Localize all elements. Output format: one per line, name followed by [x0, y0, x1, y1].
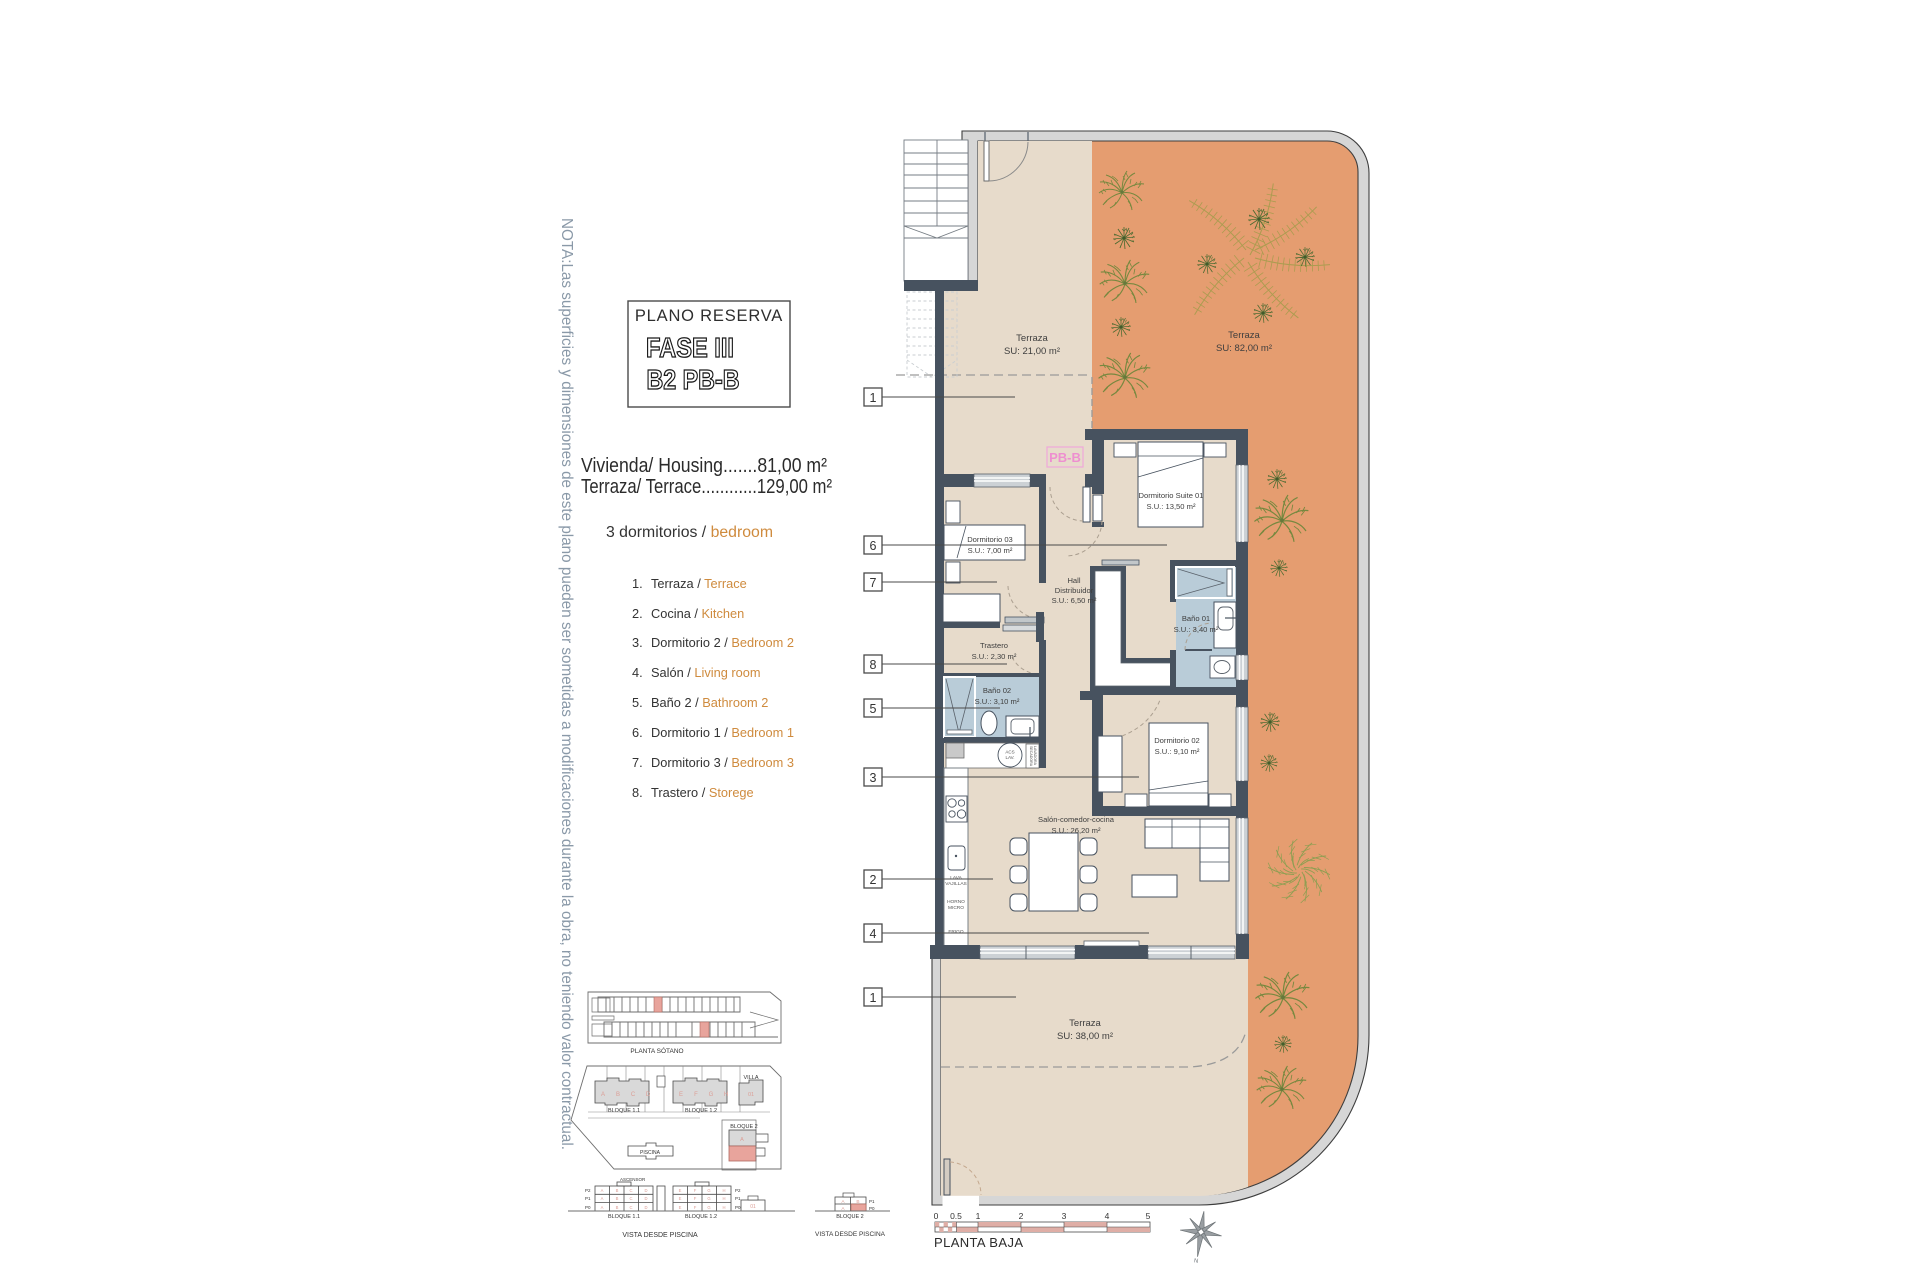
svg-text:H: H [722, 1196, 725, 1201]
svg-text:3: 3 [870, 771, 877, 785]
svg-text:5.: 5. [632, 695, 643, 710]
svg-text:PLANO RESERVA: PLANO RESERVA [635, 307, 783, 325]
svg-text:VAJILLAS: VAJILLAS [945, 881, 967, 887]
svg-text:SECADORA: SECADORA [1029, 746, 1033, 767]
svg-text:FRIGO: FRIGO [948, 929, 963, 935]
svg-text:ACS: ACS [1005, 750, 1014, 755]
svg-text:SU: 38,00 m²: SU: 38,00 m² [1057, 1031, 1113, 1042]
svg-text:MICRO: MICRO [948, 905, 964, 911]
svg-text:C: C [629, 1196, 632, 1201]
svg-text:S.U.: 3,40 m²: S.U.: 3,40 m² [1174, 625, 1219, 634]
svg-text:LAVA: LAVA [950, 875, 962, 881]
svg-text:ASCENSOR: ASCENSOR [620, 1177, 646, 1182]
svg-text:P1: P1 [869, 1199, 875, 1204]
svg-text:BLOQUE 1.2: BLOQUE 1.2 [685, 1108, 717, 1114]
svg-text:Cocina / Kitchen: Cocina / Kitchen [651, 606, 744, 621]
svg-text:H: H [722, 1205, 725, 1210]
svg-text:E: E [679, 1092, 683, 1098]
svg-text:PB-B: PB-B [1049, 450, 1081, 465]
svg-text:C: C [629, 1188, 632, 1193]
svg-text:7: 7 [870, 576, 877, 590]
svg-text:B: B [616, 1188, 619, 1193]
svg-text:Baño 02: Baño 02 [983, 686, 1011, 695]
svg-text:FASE III: FASE III [646, 332, 734, 363]
svg-text:01: 01 [750, 1204, 756, 1210]
svg-text:C: C [631, 1092, 636, 1098]
svg-text:Trastero: Trastero [980, 641, 1008, 650]
svg-text:8: 8 [870, 658, 877, 672]
svg-text:E: E [679, 1205, 682, 1210]
svg-text:SU: 21,00 m²: SU: 21,00 m² [1004, 346, 1060, 357]
svg-text:1.: 1. [632, 576, 643, 591]
svg-text:2.: 2. [632, 606, 643, 621]
svg-text:G: G [707, 1205, 710, 1210]
svg-text:H: H [724, 1092, 728, 1098]
svg-text:3.: 3. [632, 635, 643, 650]
svg-text:P0: P0 [585, 1205, 591, 1210]
svg-text:4: 4 [1105, 1211, 1110, 1221]
svg-text:F: F [694, 1205, 697, 1210]
svg-text:HORNO: HORNO [947, 899, 965, 905]
svg-text:Salón / Living room: Salón / Living room [651, 665, 761, 680]
svg-text:3 dormitorios / bedroom: 3 dormitorios / bedroom [606, 524, 773, 541]
svg-text:B: B [616, 1196, 619, 1201]
svg-text:H: H [722, 1188, 725, 1193]
svg-text:Distribuidor: Distribuidor [1055, 586, 1094, 595]
svg-text:Vivienda/ Housing.......81,00: Vivienda/ Housing.......81,00 m² [581, 455, 827, 477]
svg-text:6.: 6. [632, 725, 643, 740]
svg-text:S.U.: 3,10 m²: S.U.: 3,10 m² [975, 697, 1020, 706]
svg-text:Dormitorio 1 / Bedroom 1: Dormitorio 1 / Bedroom 1 [651, 725, 794, 740]
svg-text:P0: P0 [869, 1206, 875, 1211]
svg-text:1: 1 [870, 391, 877, 405]
svg-text:P2: P2 [585, 1188, 591, 1193]
svg-text:G: G [707, 1188, 710, 1193]
svg-text:7.: 7. [632, 755, 643, 770]
svg-text:VILLA: VILLA [744, 1075, 759, 1081]
svg-text:4: 4 [870, 927, 877, 941]
svg-text:D: D [644, 1205, 647, 1210]
svg-text:Dormitorio 3 / Bedroom 3: Dormitorio 3 / Bedroom 3 [651, 755, 794, 770]
svg-text:D: D [646, 1092, 651, 1098]
svg-text:E: E [679, 1196, 682, 1201]
svg-text:F: F [694, 1188, 697, 1193]
svg-text:Terraza: Terraza [1228, 330, 1260, 341]
svg-text:1: 1 [870, 991, 877, 1005]
svg-text:D: D [644, 1196, 647, 1201]
svg-text:A: A [601, 1196, 604, 1201]
svg-text:P2: P2 [735, 1188, 741, 1193]
svg-text:C: C [629, 1205, 632, 1210]
svg-text:BLOQUE 2: BLOQUE 2 [836, 1214, 864, 1220]
svg-text:P1: P1 [585, 1196, 591, 1201]
svg-text:S.U.: 13,50 m²: S.U.: 13,50 m² [1147, 502, 1196, 511]
svg-text:1: 1 [976, 1211, 981, 1221]
svg-text:Terraza: Terraza [1016, 333, 1048, 344]
svg-text:6: 6 [870, 539, 877, 553]
svg-text:S.U.: 26,20 m²: S.U.: 26,20 m² [1052, 826, 1101, 835]
svg-text:5: 5 [870, 702, 877, 716]
svg-text:B2 PB-B: B2 PB-B [647, 364, 740, 395]
svg-text:8.: 8. [632, 785, 643, 800]
svg-text:E: E [679, 1188, 682, 1193]
svg-text:2: 2 [870, 873, 877, 887]
svg-text:Terraza: Terraza [1069, 1018, 1101, 1029]
svg-text:S.U.: 9,10 m²: S.U.: 9,10 m² [1155, 747, 1200, 756]
svg-text:VISTA DESDE PISCINA: VISTA DESDE PISCINA [815, 1231, 886, 1238]
svg-text:PISCINA: PISCINA [640, 1150, 661, 1156]
svg-text:BLOQUE 1.1: BLOQUE 1.1 [608, 1214, 640, 1220]
svg-text:Dormitorio 02: Dormitorio 02 [1154, 736, 1200, 745]
svg-text:Dormitorio 2 / Bedroom 2: Dormitorio 2 / Bedroom 2 [651, 635, 794, 650]
svg-text:BLOQUE 1.1: BLOQUE 1.1 [608, 1108, 640, 1114]
svg-text:F: F [694, 1092, 698, 1098]
svg-text:LAV.: LAV. [1005, 755, 1014, 760]
svg-text:P0: P0 [735, 1205, 741, 1210]
svg-text:Baño 01: Baño 01 [1182, 614, 1210, 623]
svg-text:BLOQUE 1.2: BLOQUE 1.2 [685, 1214, 717, 1220]
svg-text:Baño 2 / Bathroom 2: Baño 2 / Bathroom 2 [651, 695, 768, 710]
svg-text:2: 2 [1019, 1211, 1024, 1221]
svg-text:G: G [707, 1196, 710, 1201]
svg-text:01: 01 [748, 1092, 754, 1098]
svg-text:A: A [601, 1092, 605, 1098]
svg-text:PLANTA BAJA: PLANTA BAJA [934, 1235, 1023, 1250]
svg-text:BLOQUE 2: BLOQUE 2 [730, 1124, 758, 1130]
svg-text:G: G [709, 1092, 714, 1098]
svg-text:D: D [644, 1188, 647, 1193]
svg-text:A: A [601, 1188, 604, 1193]
svg-text:Salón-comedor-cocina: Salón-comedor-cocina [1038, 815, 1115, 824]
svg-text:Hall: Hall [1067, 576, 1080, 585]
svg-text:N: N [1193, 1258, 1198, 1265]
svg-text:S.U.: 2,30 m²: S.U.: 2,30 m² [972, 652, 1017, 661]
svg-text:Trastero / Storege: Trastero / Storege [651, 785, 754, 800]
svg-text:Terraza / Terrace: Terraza / Terrace [651, 576, 747, 591]
svg-text:4.: 4. [632, 665, 643, 680]
svg-text:5: 5 [1146, 1211, 1151, 1221]
svg-text:A: A [740, 1137, 744, 1143]
svg-text:NOTA:Las superficies y dimensi: NOTA:Las superficies y dimensiones de es… [558, 218, 575, 1150]
svg-text:VISTA DESDE PISCINA: VISTA DESDE PISCINA [622, 1232, 698, 1239]
svg-text:Dormitorio 03: Dormitorio 03 [967, 535, 1013, 544]
svg-text:P1: P1 [735, 1196, 741, 1201]
svg-text:B: B [856, 1199, 859, 1205]
svg-text:F: F [694, 1196, 697, 1201]
svg-text:Dormitorio Suite 01: Dormitorio Suite 01 [1139, 491, 1204, 500]
svg-text:B: B [616, 1205, 619, 1210]
svg-text:0.5: 0.5 [950, 1211, 962, 1221]
svg-text:A: A [601, 1205, 604, 1210]
svg-text:PLANTA SÓTANO: PLANTA SÓTANO [630, 1046, 683, 1055]
svg-text:S.U.: 6,50 m²: S.U.: 6,50 m² [1052, 596, 1097, 605]
svg-text:0: 0 [934, 1211, 939, 1221]
svg-text:B: B [616, 1092, 620, 1098]
svg-text:S.U.: 7,00 m²: S.U.: 7,00 m² [968, 546, 1013, 555]
svg-text:SU: 82,00 m²: SU: 82,00 m² [1216, 343, 1272, 354]
svg-text:3: 3 [1062, 1211, 1067, 1221]
svg-text:Terraza/ Terrace............12: Terraza/ Terrace............129,00 m² [581, 476, 832, 498]
